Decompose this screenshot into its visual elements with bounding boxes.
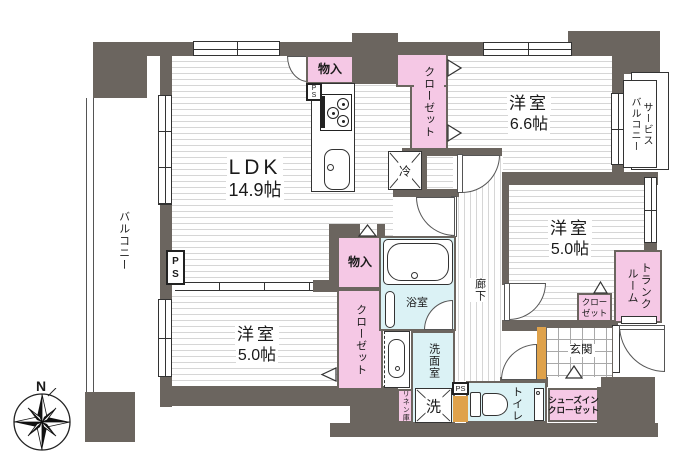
- bedroom-southwest-label: 洋室 5.0帖: [222, 320, 292, 370]
- bifold-marker-shoes-closet: [565, 365, 583, 379]
- toilet-door-knob: [536, 391, 540, 395]
- toilet-label: トイレ: [508, 385, 524, 423]
- corridor-label: 廊下: [469, 268, 489, 312]
- vanity-basin: [388, 339, 405, 378]
- door-entrance: [619, 325, 665, 372]
- bathtub: [383, 239, 453, 285]
- bathtub-drain: [411, 272, 418, 279]
- bifold-marker-bedroom-north-2: [447, 124, 462, 142]
- duct-south: [453, 396, 468, 422]
- bathroom-label: 浴室: [399, 296, 435, 311]
- wall-block-topleft: [93, 42, 147, 98]
- window-ldk-top: [193, 41, 280, 56]
- bifold-marker-bedroom-north-1: [447, 59, 462, 77]
- sliding-partition: [175, 282, 313, 291]
- entrance-step: [537, 327, 546, 379]
- entrance-label: 玄関: [561, 343, 601, 358]
- window-bedroom-southwest-left: [158, 299, 172, 377]
- bedroom-north-name: 洋室: [507, 94, 551, 114]
- wall-corridor-right: [502, 185, 509, 285]
- ldk-area: 14.9帖: [226, 180, 283, 202]
- balcony-railing-inner: [93, 98, 94, 392]
- bathroom-counter: [385, 291, 395, 328]
- kitchen-faucet: [327, 164, 334, 171]
- bedroom-southwest-name: 洋室: [235, 325, 279, 345]
- bedroom-east-name: 洋室: [548, 219, 592, 239]
- window-ldk-left: [158, 95, 172, 205]
- storage-center-label: 物入: [337, 236, 383, 289]
- ps-south-box: PS: [452, 382, 469, 395]
- wall-hall-top: [393, 189, 459, 197]
- ldk-label: LDK 14.9帖: [200, 153, 310, 203]
- wall-partition-end: [313, 280, 338, 292]
- refrigerator-label: 冷: [398, 162, 412, 179]
- service-balcony-label: サービスバルコニー: [628, 97, 652, 152]
- stove-burner-3: [337, 115, 349, 127]
- ps-kitchen-box: PS: [306, 83, 322, 101]
- bifold-marker-storage-center: [358, 224, 377, 237]
- wall-block-topcenter: [352, 33, 398, 84]
- wall-band-mid-right: [502, 172, 658, 185]
- washing-machine-label: 洗: [425, 395, 442, 416]
- vanity-drain: [395, 366, 400, 371]
- trunk-room-label: トランクルーム: [616, 253, 660, 319]
- door-leaf-entrance: [619, 325, 665, 330]
- stove-burner-1: [337, 98, 349, 110]
- ps-wall-box: PS: [166, 250, 185, 285]
- refrigerator-box: 冷: [388, 151, 422, 190]
- toilet-bowl: [482, 393, 508, 416]
- wall-block-balcony-south: [85, 392, 135, 442]
- window-bedroom-east-right: [644, 177, 657, 243]
- balcony-label: バルコニー: [114, 203, 132, 278]
- trunk-room-text: トランクルーム: [625, 262, 651, 310]
- bifold-marker-closet-west: [321, 367, 337, 382]
- toilet-tank: [470, 392, 481, 417]
- bedroom-east-label: 洋室 5.0帖: [535, 214, 605, 264]
- service-balcony-label-box: サービスバルコニー: [623, 80, 657, 168]
- stove: [320, 94, 352, 131]
- washroom-label: 洗面室: [423, 337, 443, 385]
- bedroom-north-label: 洋室 6.6帖: [494, 88, 564, 140]
- closet-north-label: クローゼット: [416, 56, 440, 148]
- closet-east-label: クローゼット: [577, 293, 612, 322]
- closet-west-label: クローゼット: [337, 292, 383, 387]
- bifold-marker-closet-east: [593, 281, 608, 294]
- washing-machine-box: 洗: [415, 388, 452, 423]
- bedroom-north-area: 6.6帖: [508, 115, 550, 134]
- bedroom-southwest-area: 5.0帖: [236, 346, 278, 365]
- floor-plan: サービスバルコニー 物入 クローゼット 物入 クローゼット クローゼット トラン…: [0, 0, 700, 474]
- balcony-railing-outer: [86, 98, 87, 392]
- trunk-room-sill: [621, 316, 657, 324]
- window-bedroom-north-top: [483, 42, 572, 56]
- ldk-name: LDK: [227, 155, 284, 180]
- compass-rose: [4, 388, 80, 458]
- shoes-in-closet-label: シューズインクローゼット: [548, 388, 599, 422]
- bedroom-east-area: 5.0帖: [549, 240, 591, 259]
- wall-bedroom-southwest-bottom: [172, 386, 350, 406]
- storage-north-label: 物入: [306, 55, 354, 84]
